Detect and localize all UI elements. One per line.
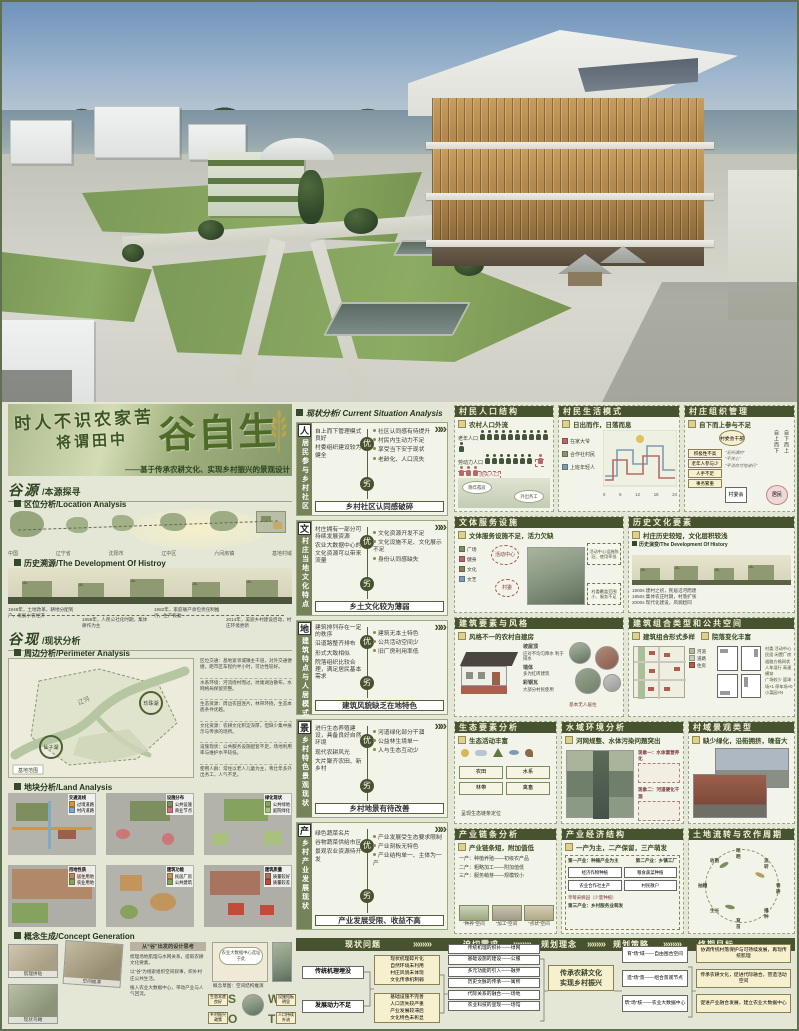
person-icon xyxy=(480,430,485,440)
person-icon xyxy=(459,466,464,476)
person-icon xyxy=(529,430,534,440)
org-issues: 积极性不高 老年人参与少 人手不足 事务繁重 xyxy=(688,448,722,489)
analysis-item: 社区认同感有待提升 xyxy=(373,429,445,436)
perimeter-note: 设施现状：公共服务设施配套不足，场地利用率与维护水平较低。 xyxy=(200,742,292,756)
analysis-item: 文化设施不足、文化展示不足 xyxy=(373,540,445,554)
panel-title: 产业链条分析 xyxy=(455,829,556,840)
concept-line: 实现乡村振兴 xyxy=(560,978,602,988)
tag-vertical: 建筑特点与人居模式 xyxy=(300,637,310,718)
chain-row: 二产：粗略加工——附加值低 xyxy=(459,864,554,873)
house-block xyxy=(649,651,655,655)
problem-group-2: 基础设施不完善 人口流失较严重 产业发展较滞后 文化特色未彰显 xyxy=(374,993,440,1023)
tag-char: 人 xyxy=(298,424,311,437)
eco-box: 禽畜 xyxy=(506,782,550,795)
panel-title: 村民人口结构 xyxy=(455,406,553,417)
daily-schedule-diagram xyxy=(603,430,677,492)
flow-chevrons-icon: »»»» xyxy=(413,938,431,951)
analysis-item: 产业刻板无特色 xyxy=(373,844,445,851)
group-label: 在家大爷 xyxy=(570,439,590,445)
thumb-caption: 肌理拼贴 xyxy=(9,971,57,977)
wall-shape xyxy=(461,666,507,686)
panel-subtitle: 建筑组合形式多样 xyxy=(632,631,695,641)
person-icon xyxy=(501,430,506,440)
panel-title: 水域环境分析 xyxy=(562,722,683,733)
tag-vertical: 居民参与乡村社区 xyxy=(300,439,310,511)
concept-para: 梳理场地肌理与水网关系，提取农耕文化要素。 xyxy=(130,954,206,966)
china-map-shape xyxy=(10,511,44,537)
node-weakness: 劣 xyxy=(360,889,374,903)
economy-boxes: 经济作物种植 粮食蔬菜种植 农业合作社主产 村民散户 xyxy=(568,867,677,891)
house-block xyxy=(649,669,655,673)
district-map-shape xyxy=(160,513,186,531)
panel-water: 水域环境分析 河网规整、水体污染问题突出 现象一：水体富营养化 现象二：河道硬化… xyxy=(561,721,684,824)
land-tile: 建筑质量 质量较好 质量较差 xyxy=(204,865,292,927)
cycle-stage: 春耕 xyxy=(776,883,781,895)
need-box: 传统机理的织补——绿网 xyxy=(448,944,540,954)
panel-industry-economy: 产业经济结构 一产为主，二产保留，三产萌发 第一产业：种植产业为主 第二产业：乡… xyxy=(561,828,684,934)
tile-legend: 绿化现状 公共绿地 庭院绿化 xyxy=(264,794,291,815)
house-axon-diagram xyxy=(461,652,521,702)
history-inner-label: 历史演变/The Development Of History xyxy=(632,541,791,548)
window xyxy=(478,672,485,679)
panel-spine: 优 劣 xyxy=(367,726,368,801)
panel-tag: 文村庄当地文化特点 xyxy=(297,521,312,615)
chain-item: 六间房镇 xyxy=(214,550,234,557)
poster-title-line2: 将谓田中 xyxy=(55,428,128,453)
cycle-stage: 流转 xyxy=(764,858,769,870)
economy-extra: 草莓采摘园（少量种植） xyxy=(568,895,677,901)
mullions xyxy=(432,200,704,240)
perimeter-note: 水系环境：河流绕村而过，坑塘湖泊散布，水网格局保留完整。 xyxy=(200,678,292,692)
section-title: 谷现 xyxy=(8,629,40,649)
panel-spine: 优 劣 xyxy=(367,627,368,698)
problem-box: 发展动力不足 xyxy=(302,1000,364,1013)
chain-item: 辽宁省 xyxy=(56,550,71,557)
house-silhouette xyxy=(192,582,220,597)
roof-shape xyxy=(460,652,518,666)
node-strength: 优 xyxy=(360,734,374,748)
water-cases: 现象一：水体富营养化 现象二：河道硬化干涸 xyxy=(638,750,682,821)
mullions xyxy=(432,98,704,142)
panel-subtitle: 文体服务设施不足，活力欠缺 xyxy=(458,530,620,540)
tile-legend: 交通流线 过境道路 村内道路 xyxy=(68,794,95,815)
cycle-stage: 抽穗 xyxy=(698,883,707,889)
tick: 24 xyxy=(672,492,677,497)
swot-note: 生态本底良好 xyxy=(208,994,228,1006)
group-item: 村庄风貌未体现 xyxy=(376,971,438,978)
perimeter-note: 使用人群：常住以老人儿童为主，青壮年多外出务工，人气不足。 xyxy=(200,764,292,778)
perimeter-note: 文化资源：农耕文化积淀深厚，但缺少集中展示与传承的场所。 xyxy=(200,721,292,735)
tall-tree xyxy=(298,170,324,224)
perimeter-notes: 区位交通：基地紧邻城镇主干道，对外交通便捷，距市区车程约半小时，可达性较好。 水… xyxy=(200,658,292,778)
space-card: “点状”空间 xyxy=(524,905,554,927)
floor-slab xyxy=(426,240,714,247)
group-label: 上班年轻人 xyxy=(570,465,595,471)
space-card: “加工”空间 xyxy=(492,905,522,927)
callout-value: 应对不均匀降水 利于排水 xyxy=(523,651,564,662)
economy-diagram: 第一产业：种植产业为主 第二产业：乡镇工厂 经济作物种植 粮食蔬菜种植 农业合作… xyxy=(565,855,680,930)
space-caption: “加工”空间 xyxy=(492,921,522,927)
analysis-item: 景观农业资源待开发 xyxy=(315,849,365,863)
patch xyxy=(260,905,274,915)
quote: “平淡应付地进行” xyxy=(725,463,769,469)
person-icon xyxy=(473,466,478,476)
patch xyxy=(120,875,142,891)
second-industry-label: 第二产业：乡镇工厂 xyxy=(636,858,677,864)
courtyard-diagram xyxy=(741,674,762,699)
land-analysis-label: 地块分析/Land Analysis xyxy=(14,782,112,793)
strength-items: 自上而下管理模式良好 村委组织建设较为健全 xyxy=(315,427,365,462)
group-item: 人口流失较严重 xyxy=(376,1002,438,1009)
subtitle-row: 建筑组合形式多样 院落变化丰富 xyxy=(629,629,794,642)
green-terrace-building xyxy=(208,152,304,216)
cadre-node: 村委会干部 xyxy=(719,430,745,446)
analysis-item: 进行生态养殖建设，具备良好自然环境 xyxy=(315,726,365,748)
patch xyxy=(210,871,260,895)
case-diagram xyxy=(638,763,680,783)
callout-key: 坡屋顶 xyxy=(523,644,538,650)
facility-note: 村委覆盖范围小、服务不足 xyxy=(587,583,621,605)
swot-letter-t: T xyxy=(268,1012,275,1026)
panel-banner: 乡村社区认同感破碎 xyxy=(315,501,444,512)
tick: 6 xyxy=(619,492,621,497)
photo-circle xyxy=(569,642,591,664)
swot-note: 人口持续外流 xyxy=(276,1012,296,1024)
analysis-item: 河道绿化部分干涸 xyxy=(373,730,445,737)
title-block: 时人不识农家苦 将谓田中 谷自生 ——基于传承农耕文化、实现乡村振兴的景观设计 xyxy=(8,404,292,476)
map-corner-label: 基地范围 xyxy=(18,767,38,774)
warehouse-building xyxy=(10,120,72,164)
legend-row: 道路 xyxy=(689,655,713,662)
node-strength: 优 xyxy=(360,839,374,853)
legend-item: 过境道路 xyxy=(77,802,94,807)
hero-render xyxy=(2,2,797,402)
panel-title: 村域景观类型 xyxy=(689,722,794,733)
panel-spine: 优 劣 xyxy=(367,429,368,499)
analysis-item: 谷物蔬菜供给市区 xyxy=(315,840,365,847)
sketch-bubble: 农业大数据中心选址于此 xyxy=(219,947,263,965)
section-subtitle: /本源探寻 xyxy=(42,485,81,498)
facility-item: 文艺 xyxy=(459,576,485,583)
callout-value: 多为红砖建筑 xyxy=(523,671,549,676)
swot-letter-s: S xyxy=(228,992,236,1006)
photo-circles xyxy=(569,642,621,698)
history-timeline: 1948年，土地改革，耕地分配到户，发展小农经济 1958年，人民公社化时期，集… xyxy=(8,607,292,625)
space-caption: “种养”空间 xyxy=(459,921,489,927)
person-icon xyxy=(520,454,525,464)
panel-spine: 优 劣 xyxy=(367,527,368,599)
panel-title: 文体服务设施 xyxy=(455,517,623,528)
speech-bubble: 晚年孤寂 xyxy=(462,481,492,494)
land-tile: 交通流线 过境道路 村内道路 xyxy=(8,793,96,855)
swot-diagram: S W O T 生态本底良好 设施短板明显 乡村振兴政策 人口持续外流 xyxy=(212,992,292,1026)
person-icon xyxy=(538,454,543,464)
panel-organization: 村庄组织管理 自下而上参与不足 村委会干部 积极性不高 老年人参与少 人手不足 … xyxy=(684,405,795,512)
legend-row: 河道 xyxy=(689,648,713,655)
facility-list: 广场 健身 文化 文艺 xyxy=(459,543,485,586)
sun-circle-decor xyxy=(128,509,268,549)
panel-subtitle: 风格不一的农村自建房 xyxy=(458,631,620,641)
panel-tag: 景乡村特色景观现状 xyxy=(297,720,312,817)
group-label: 合作社村民 xyxy=(570,452,595,458)
tree xyxy=(344,208,378,234)
analysis-item: 大片聚齐农田、新乡村 xyxy=(315,759,365,773)
warehouse-building xyxy=(94,106,180,158)
patch xyxy=(212,833,228,845)
analysis-item: 沿道路整齐排布 xyxy=(315,641,365,648)
person-icon xyxy=(508,430,513,440)
space-diagram xyxy=(492,905,522,921)
panel-subtitle: 农村人口外流 xyxy=(458,419,550,429)
person-icon xyxy=(499,454,504,464)
photo-circle xyxy=(603,674,621,692)
panel-facility: 文体服务设施 文体服务设施不足，活力欠缺 广场 健身 文化 文艺 活动中心 村委… xyxy=(454,516,624,613)
panel-subtitle: 缺少绿化，沿街拥挤，噪音大 xyxy=(692,735,791,745)
person-icon xyxy=(492,454,497,464)
cycle-stage: 生长 xyxy=(710,908,719,914)
lake-label: 仙子湖 xyxy=(43,744,58,751)
tree xyxy=(122,244,144,262)
facility-item: 广场 xyxy=(459,546,485,553)
panel-crop-cycle: 土地流转与农作周期 春耕 播种 育苗 生长 抽穗 收割 晾晒 流转 xyxy=(688,828,795,934)
strength-items: 进行生态养殖建设，具备良好自然环境 现代农耕风光 大片聚齐农田、新乡村 xyxy=(315,724,365,775)
eco-box: 林带 xyxy=(459,782,503,795)
timeline-entry: 1958年，人民公社化时期，集体耕作为主 xyxy=(82,617,150,629)
panel-population: 村民人口结构 农村人口外流 老年人口 劳动力人口 流失人口 学龄儿童 晚年孤寂 … xyxy=(454,405,554,512)
history-notes: 1900s 建村之初，民居沿河而建 1950s 集体农庄时期，村落扩张 2000… xyxy=(632,588,791,607)
panel-title: 建筑要素与风格 xyxy=(455,618,623,629)
economy-box: 农业合作社主产 xyxy=(568,880,622,891)
tile-legend: 设施分布 公共设施 商业节点 xyxy=(166,794,193,815)
swot-center-photo xyxy=(242,994,264,1016)
patch xyxy=(130,801,170,821)
legend-label: 道路 xyxy=(697,656,706,661)
group-item: 现状机理碎片化 xyxy=(376,957,438,964)
group-item: 文化特色未彰显 xyxy=(376,1016,438,1023)
land-tile: 用地性质 居住用地 农业用地 xyxy=(8,865,96,927)
history-illustration xyxy=(8,568,292,604)
panel-streetscape: 村域景观类型 缺少绿化，沿街拥挤，噪音大 xyxy=(688,721,795,824)
house-block xyxy=(664,687,670,691)
legend-label: 住房 xyxy=(697,663,706,668)
node-strength: 优 xyxy=(360,635,374,649)
panel-title: 村庄组织管理 xyxy=(685,406,794,417)
patch xyxy=(12,903,48,923)
animal-icon xyxy=(525,749,533,757)
callout-key: 彩钢瓦 xyxy=(523,680,538,686)
analysis-panel-industry: 产乡村产业发展现状 »» 绿色蔬菜名片 谷物蔬菜供给市区 景观农业资源待开发 优… xyxy=(296,822,448,930)
weakness-items: 文化资源开发不足 文化设施不足、文化展示不足 身份认同感缺失 xyxy=(373,529,445,566)
time-axis: 06121824 xyxy=(603,492,677,497)
panel-history-culture: 历史文化要素 村庄历史较短，文化层积较浅 历史演变/The Developmen… xyxy=(628,516,795,613)
life-group: 合作社村民 xyxy=(562,451,600,458)
road-shadow xyxy=(2,370,72,402)
history-village-illustration xyxy=(632,555,791,585)
planting-band xyxy=(208,196,304,202)
sketch-caption: 概念草图：空间结构推演 xyxy=(213,983,273,989)
village-committee-node: 村委 xyxy=(495,579,519,597)
glass-floor-2 xyxy=(432,149,704,193)
canal-water xyxy=(593,751,609,819)
analysis-item: 人与生态互动少 xyxy=(373,748,445,755)
perimeter-map: 珍珠湖 仙子湖 辽河 基地范围 xyxy=(8,658,194,778)
node-strength: 优 xyxy=(360,535,374,549)
legend-item: 民居厂房 xyxy=(175,874,192,879)
facility-label: 文化 xyxy=(467,568,477,573)
sun-icon xyxy=(461,749,469,757)
section-title: 谷源 xyxy=(8,480,40,500)
cycle-stage: 晾晒 xyxy=(736,848,742,860)
panel-title: 历史文化要素 xyxy=(629,517,794,528)
concept-heading: 从“谷”出发的设计思考 xyxy=(130,942,206,951)
economy-top-row: 第一产业：种植产业为主 第二产业：乡镇工厂 xyxy=(568,858,677,864)
panel-arch-types: 建筑组合类型和公共空间 建筑组合形式多样 院落变化丰富 河道 道路 住房 xyxy=(628,617,795,717)
panel-subtitle: 村庄历史较短，文化层积较浅 xyxy=(632,530,791,540)
weakness-items: 建筑无本土特色 公共活动空间少 旧厂房利用率低 xyxy=(373,629,445,659)
need-box: 代际关系的融合——场地 xyxy=(448,990,540,1000)
courtyard-diagram xyxy=(741,646,762,671)
person-icon xyxy=(513,454,518,464)
panel-title: 产业经济结构 xyxy=(562,829,683,840)
panel-banner: 乡土文化较为薄弱 xyxy=(315,601,444,612)
brick-base xyxy=(461,686,507,694)
chain-item: 中国 xyxy=(8,550,18,557)
legend-row: 住房 xyxy=(689,662,713,669)
strength-items: 村庄拥有一部分可持续发展资源 农业大数据中心的文化资源可以带来流量 xyxy=(315,525,365,567)
life-groups: 在家大爷 合作社村民 上班年轻人 xyxy=(562,432,600,477)
person-icon xyxy=(466,466,471,476)
analysis-item: 身份认同感缺失 xyxy=(373,557,445,564)
analysis-item: 村庄拥有一部分可持续发展资源 xyxy=(315,527,365,541)
eco-boxes: 农田 水系 林带 禽畜 xyxy=(459,766,554,795)
person-icon xyxy=(485,454,490,464)
tag-char: 文 xyxy=(298,522,311,535)
planting-band xyxy=(208,178,304,184)
tile-legend: 建筑质量 质量较好 质量较差 xyxy=(264,866,291,887)
panel-title: 建筑组合类型和公共空间 xyxy=(629,618,794,629)
eco-box: 农田 xyxy=(459,766,503,779)
strategy-box: 育“场”域——自由围合空间 xyxy=(622,946,688,963)
panel-title: 土地流转与农作周期 xyxy=(689,829,794,840)
panel-tag: 人居民参与乡村社区 xyxy=(297,423,312,515)
analysis-item: 村民内生动力不足 xyxy=(373,438,445,445)
concept-line: 传承农耕文化 xyxy=(560,968,602,978)
strength-items: 建筑排列存在一定的秩序 沿道路整齐排布 形式大致相似 院落组织比较合理，满足居民… xyxy=(315,623,365,684)
problem-box: 传统机理埋没 xyxy=(302,966,364,979)
node-weakness: 劣 xyxy=(360,779,374,793)
legend-item: 居住用地 xyxy=(77,874,94,879)
tag-char: 产 xyxy=(298,824,311,837)
patch xyxy=(224,799,268,821)
location-chain: 中国 辽宁省 沈阳市 辽中区 六间房镇 基地村域 xyxy=(8,550,292,557)
village-plan-diagram xyxy=(633,646,685,698)
floor-slab xyxy=(426,193,714,200)
patch xyxy=(116,829,130,839)
analysis-item: 享受当下安于现状 xyxy=(373,447,445,454)
concept-para: 以“谷”为线索组织空间叙事，织补村庄公共生活。 xyxy=(130,969,206,981)
land-analysis-grid: 交通流线 过境道路 村内道路 设施分布 公共设施 商业节点 绿化现状 公共绿地 … xyxy=(8,793,292,927)
node-weakness: 劣 xyxy=(360,676,374,690)
road-line xyxy=(634,661,686,663)
legend-item: 庭院绿化 xyxy=(273,808,290,813)
problem-group-1: 现状机理碎片化 自然环境未利用 村庄风貌未体现 文化传承机制弱 xyxy=(374,955,440,985)
floor-slab xyxy=(426,142,714,149)
road-line xyxy=(634,679,686,681)
analysis-item: 院落组织比较合理，满足居民基本需求 xyxy=(315,660,365,682)
lake-label: 珍珠湖 xyxy=(143,700,158,707)
panel-title: 生态要素分析 xyxy=(455,722,556,733)
panel-tag: 地建筑特点与人居模式 xyxy=(297,621,312,714)
patch xyxy=(264,831,282,845)
panel-subtitle: 产业链条短，附加值低 xyxy=(458,842,553,852)
person-icon xyxy=(487,430,492,440)
analysis-item: 旧厂房利用率低 xyxy=(373,649,445,656)
analysis-panel-landscape: 景乡村特色景观现状 »» 进行生态养殖建设，具备良好自然环境 现代农耕风光 大片… xyxy=(296,719,448,818)
house-silhouette xyxy=(714,568,734,580)
callout: 彩钢瓦大部分村民使用 xyxy=(523,680,567,692)
cycle-stage: 播种 xyxy=(764,908,769,920)
analysis-item: 公益林生境单一 xyxy=(373,739,445,746)
tag-vertical: 乡村特色景观现状 xyxy=(300,736,310,808)
person-icon xyxy=(506,454,511,464)
house-block xyxy=(674,667,680,671)
tile-legend: 用地性质 居住用地 农业用地 xyxy=(68,866,95,887)
node-strength: 优 xyxy=(360,437,374,451)
need-box: 历史文脉的传承——寓所 xyxy=(448,978,540,988)
timeline-entry: 1982年，家庭联产承包责任制推行，生产恢复 xyxy=(154,607,222,619)
panel-banner: 乡村地景有待改善 xyxy=(315,803,444,814)
panel-subtitle: 院落变化丰富 xyxy=(701,631,751,641)
house-silhouette xyxy=(130,579,164,597)
concept-photo xyxy=(272,942,292,982)
space-diagram xyxy=(459,905,489,921)
chain-row: 一产：种植养殖——初级农产品 xyxy=(459,855,554,864)
swot-letter-o: O xyxy=(228,1012,237,1026)
panel-banner: 建筑风貌缺乏在地特色 xyxy=(315,700,444,711)
analysis-panel-culture: 文村庄当地文化特点 »» 村庄拥有一部分可持续发展资源 农业大数据中心的文化资源… xyxy=(296,520,448,616)
weakness-items: 社区认同感有待提升 村民内生动力不足 享受当下安于现状 老龄化、人口流失 xyxy=(373,427,445,466)
space-caption: “点状”空间 xyxy=(524,921,554,927)
analysis-item: 绿色蔬菜名片 xyxy=(315,831,365,838)
legend-item: 公共绿地 xyxy=(273,802,290,807)
panel-subtitle: 一产为主，二产保留，三产萌发 xyxy=(565,842,680,852)
facility-note: 活动中心设施陈旧、使用率低 xyxy=(587,543,621,565)
thumb-caption: 现状鸟瞰 xyxy=(9,1017,57,1023)
need-box: 基础设施的建设——公服 xyxy=(448,955,540,965)
group-item: 基础设施不完善 xyxy=(376,995,438,1002)
plan-legend: 河道 道路 住房 xyxy=(689,648,713,669)
chain-spaces: “种养”空间 “加工”空间 “点状”空间 xyxy=(459,905,554,927)
weakness-items: 产业发展受生态要求限制 产业刻板无特色 产业结构单一、主体为一产 xyxy=(373,833,445,870)
perimeter-note: 生态资源：周边农田连片，林带环绕，生态本底条件优越。 xyxy=(200,699,292,713)
panel-title: 村民生活模式 xyxy=(559,406,679,417)
cycle-stage: 收割 xyxy=(710,858,719,864)
mullions xyxy=(432,149,704,193)
concept-thumb: 空间推演 xyxy=(63,940,124,988)
facility-label: 健身 xyxy=(467,558,477,563)
needs-column: 传统机理的织补——绿网 基础设施的建设——公服 多元功能的引入——融界 历史文脉… xyxy=(448,942,540,1013)
history-note: 2000s 现代化建设，风貌趋同 xyxy=(632,600,791,606)
weakness-items: 河道绿化部分干涸 公益林生境单一 人与生态互动少 xyxy=(373,728,445,758)
tag-vertical: 乡村产业发展现状 xyxy=(300,839,310,911)
analysis-item: 产业发展受生态要求限制 xyxy=(373,835,445,842)
poster-subtitle: ——基于传承农耕文化、实现乡村振兴的景观设计 xyxy=(125,464,290,475)
person-icons xyxy=(484,460,533,466)
concept-text: 从“谷”出发的设计思考 梳理场地肌理与水网关系，提取农耕文化要素。 以“谷”为线… xyxy=(130,942,206,1026)
planting-band xyxy=(208,160,304,166)
analysis-item: 建筑无本土特色 xyxy=(373,631,445,638)
wheat-icon xyxy=(270,408,288,452)
